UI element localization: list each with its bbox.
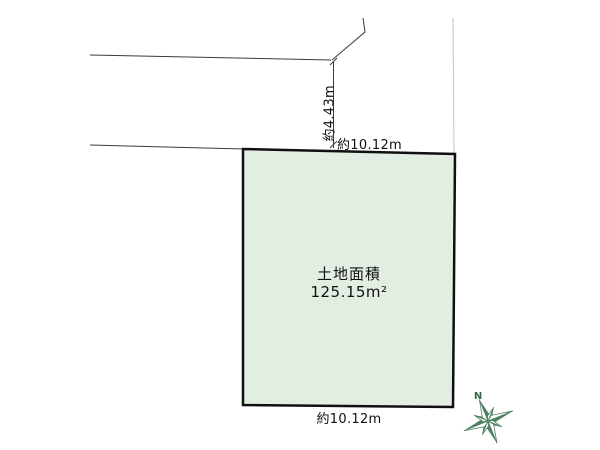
corner-boundary-line <box>332 18 365 60</box>
compass-north-label: N <box>474 391 482 402</box>
side-depth-dimension-label: 約4.43m <box>319 86 334 142</box>
compass-rose <box>455 390 522 450</box>
plan-drawing: N <box>0 0 600 450</box>
land-area-block: 土地面積 125.15m² <box>249 265 449 301</box>
land-area-title: 土地面積 <box>249 265 449 283</box>
site-plan: N 約10.12m 約4.43m 約10.12m 土地面積 125.15m² <box>0 0 600 450</box>
upper-road-line <box>90 55 331 60</box>
lower-road-line <box>90 145 244 149</box>
compass-light-halves <box>455 390 522 450</box>
top-width-dimension-label: 約10.12m <box>337 134 402 153</box>
land-area-value: 125.15m² <box>249 283 449 301</box>
faint-boundary-line <box>453 18 454 155</box>
bottom-width-dimension-label: 約10.12m <box>299 408 399 427</box>
